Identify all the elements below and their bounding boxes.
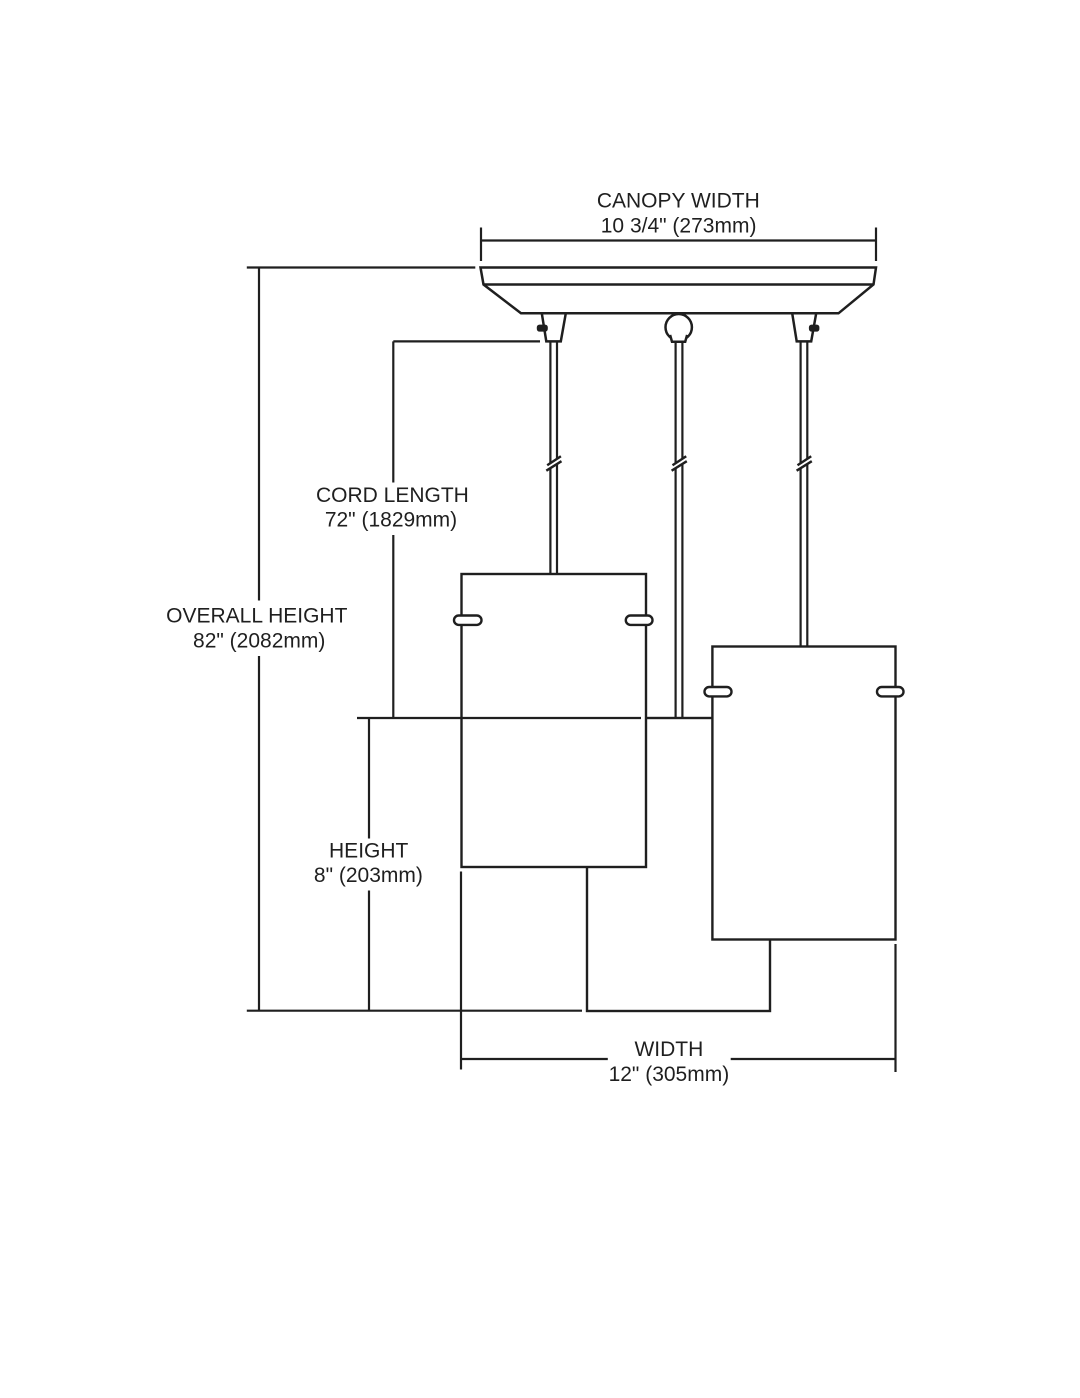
svg-text:72" (1829mm): 72" (1829mm) bbox=[325, 508, 457, 531]
svg-text:10 3/4" (273mm): 10 3/4" (273mm) bbox=[601, 214, 757, 237]
svg-text:CANOPY WIDTH: CANOPY WIDTH bbox=[597, 190, 760, 213]
svg-text:82" (2082mm): 82" (2082mm) bbox=[193, 629, 325, 652]
svg-text:HEIGHT: HEIGHT bbox=[329, 840, 409, 863]
svg-text:12" (305mm): 12" (305mm) bbox=[609, 1063, 730, 1086]
svg-text:OVERALL HEIGHT: OVERALL HEIGHT bbox=[166, 605, 347, 628]
svg-text:8" (203mm): 8" (203mm) bbox=[314, 864, 423, 887]
svg-text:CORD LENGTH: CORD LENGTH bbox=[316, 484, 469, 507]
svg-text:WIDTH: WIDTH bbox=[634, 1038, 703, 1061]
